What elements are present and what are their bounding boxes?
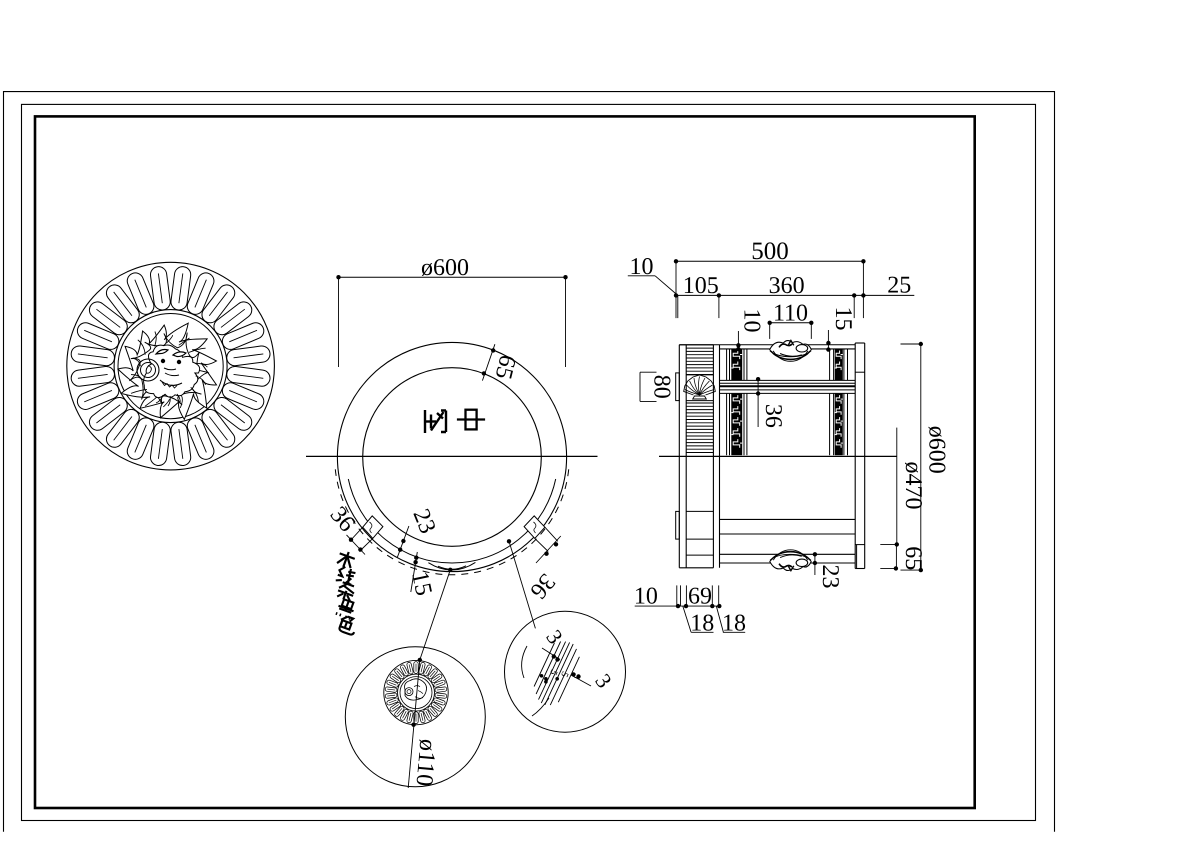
svg-text:10: 10 [634,584,658,610]
svg-text:105: 105 [683,273,719,299]
svg-text:500: 500 [751,238,789,265]
svg-text:ø470: ø470 [900,462,926,510]
svg-text:23: 23 [817,565,843,589]
svg-text:ø600: ø600 [421,255,469,281]
svg-text:ø600: ø600 [924,426,950,474]
svg-text:110: 110 [773,300,808,326]
svg-text:360: 360 [769,273,805,299]
svg-text:10: 10 [739,309,765,333]
svg-text:ø110: ø110 [410,738,440,787]
svg-text:25: 25 [887,273,911,299]
svg-text:80: 80 [649,375,675,399]
svg-text:15: 15 [830,307,856,331]
svg-text:69: 69 [688,584,712,610]
svg-text:65: 65 [900,546,926,570]
svg-text:36: 36 [760,404,786,428]
